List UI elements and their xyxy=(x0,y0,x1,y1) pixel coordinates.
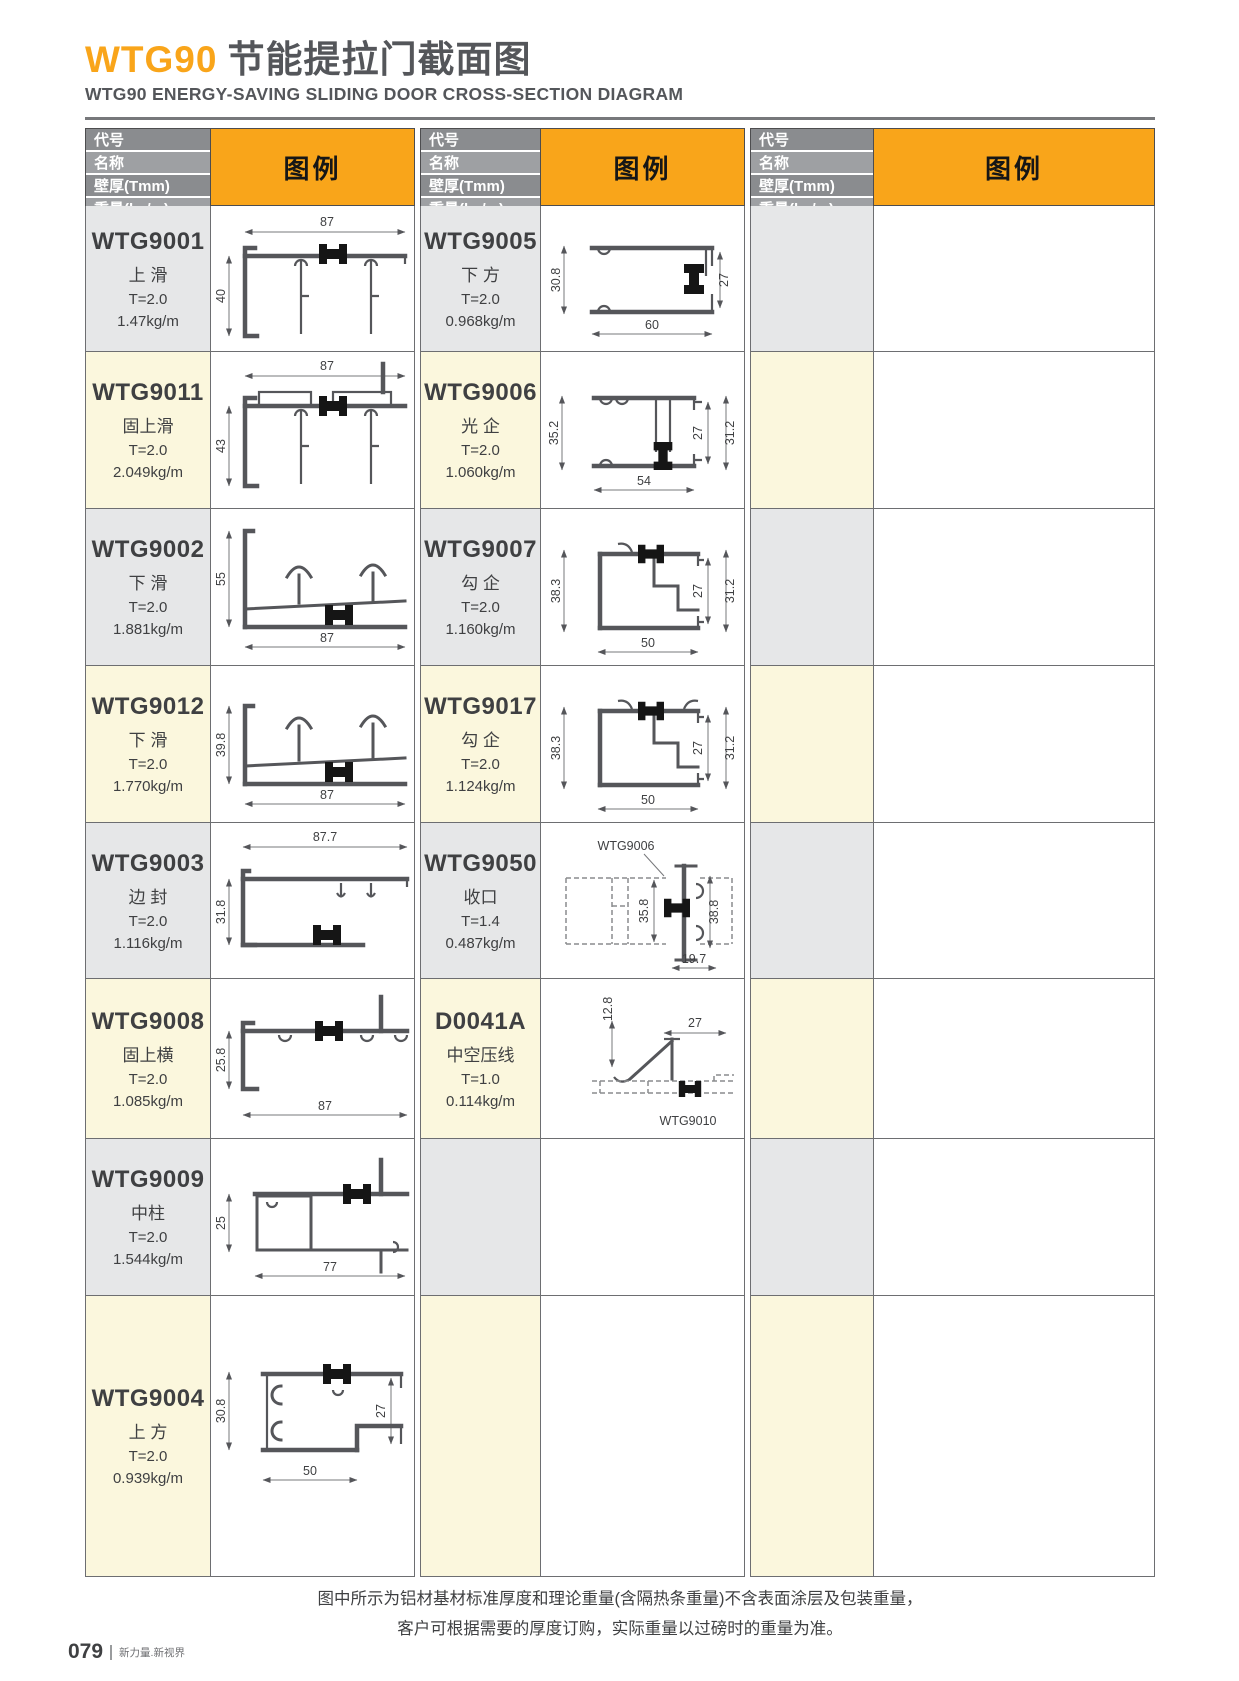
diagram-cell: 87 43 xyxy=(211,352,414,508)
product-code: WTG9012 xyxy=(92,693,205,721)
product-code: WTG9007 xyxy=(424,536,537,564)
table-row: WTG9012 下 滑 T=2.0 1.770kg/m 39.8 87 xyxy=(85,666,415,823)
table-group-1: 代号 名称 壁厚(Tmm) 重量(kg/m) 图例 WTG9001 上 滑 T=… xyxy=(85,128,415,1577)
dim-label: 50 xyxy=(641,636,655,650)
profile-diagram-wtg9012: 39.8 87 xyxy=(215,672,411,816)
diagram-cell: 38.3 27 31.2 50 xyxy=(541,666,744,822)
product-name: 中柱 xyxy=(131,1199,165,1224)
diagram-cell-empty xyxy=(541,1139,744,1295)
diagram-cell-empty xyxy=(541,1296,744,1576)
table-row xyxy=(420,1296,745,1577)
dim-label: 55 xyxy=(215,572,228,586)
product-info: WTG9007 勾 企 T=2.0 1.160kg/m xyxy=(421,509,541,665)
product-weight: 0.968kg/m xyxy=(445,313,515,330)
dim-label: 31.2 xyxy=(723,736,737,760)
product-code: WTG9006 xyxy=(424,379,537,407)
product-info-empty xyxy=(751,1296,874,1576)
product-info: WTG9001 上 滑 T=2.0 1.47kg/m xyxy=(86,206,211,351)
product-thickness: T=2.0 xyxy=(461,599,500,616)
diagram-cell-empty xyxy=(874,823,1154,978)
title-series-code: WTG90 xyxy=(85,39,217,80)
dim-label: 87 xyxy=(320,631,334,645)
product-thickness: T=2.0 xyxy=(129,442,168,459)
diagram-cell: 25.8 87 xyxy=(211,979,414,1138)
table-row: WTG9011 固上滑 T=2.0 2.049kg/m 87 43 xyxy=(85,352,415,509)
product-code: WTG9004 xyxy=(92,1385,205,1413)
product-info-empty xyxy=(421,1296,541,1576)
diagram-cell-empty xyxy=(874,509,1154,665)
product-info: WTG9002 下 滑 T=2.0 1.881kg/m xyxy=(86,509,211,665)
profile-diagram-wtg9017: 38.3 27 31.2 50 xyxy=(548,671,738,817)
product-code: WTG9002 xyxy=(92,536,205,564)
product-name: 中空压线 xyxy=(447,1041,515,1066)
profile-diagram-wtg9006: 35.2 27 31.2 54 xyxy=(548,358,738,502)
product-name: 勾 企 xyxy=(461,726,500,751)
product-code: WTG9005 xyxy=(424,228,537,256)
dim-label: 38.8 xyxy=(707,899,721,923)
diagram-cell-empty xyxy=(874,666,1154,822)
dim-label: 27 xyxy=(691,426,705,440)
table-row: WTG9006 光 企 T=2.0 1.060kg/m 35.2 27 31.2… xyxy=(420,352,745,509)
product-thickness: T=2.0 xyxy=(461,756,500,773)
product-code: WTG9001 xyxy=(92,228,205,256)
dim-label: 87 xyxy=(318,1099,332,1113)
profile-diagram-d0041a: 12.8 27 WTG9010 xyxy=(548,979,738,1139)
table-row xyxy=(750,979,1155,1139)
title-block: WTG90节能提拉门截面图 WTG90 ENERGY-SAVING SLIDIN… xyxy=(85,40,1155,105)
table-row xyxy=(750,509,1155,666)
diagram-cell: WTG9006 35.8 38.8 19.7 xyxy=(541,823,744,978)
product-code: WTG9009 xyxy=(92,1166,205,1194)
table-row: WTG9017 勾 企 T=2.0 1.124kg/m 38.3 27 31.2… xyxy=(420,666,745,823)
diagram-cell: 35.2 27 31.2 54 xyxy=(541,352,744,508)
product-name: 固上滑 xyxy=(123,412,174,437)
product-weight: 0.487kg/m xyxy=(445,935,515,952)
reference-label: WTG9006 xyxy=(597,839,654,853)
header-legend: 图例 xyxy=(541,129,744,205)
header-label-thickness: 壁厚(Tmm) xyxy=(751,175,873,196)
dim-label: 38.3 xyxy=(549,579,563,603)
product-code: WTG9050 xyxy=(424,850,537,878)
table-row: WTG9005 下 方 T=2.0 0.968kg/m 30.8 27 60 xyxy=(420,206,745,352)
diagram-cell: 12.8 27 WTG9010 xyxy=(541,979,744,1138)
product-info-empty xyxy=(751,352,874,508)
header-label-thickness: 壁厚(Tmm) xyxy=(421,175,540,196)
table-group-3: 代号 名称 壁厚(Tmm) 重量(kg/m) 图例 xyxy=(750,128,1155,1577)
product-name: 下 滑 xyxy=(129,569,168,594)
page-number: 079 xyxy=(68,1640,103,1664)
diagram-cell: 87 40 xyxy=(211,206,414,351)
product-info: WTG9009 中柱 T=2.0 1.544kg/m xyxy=(86,1139,211,1295)
product-thickness: T=2.0 xyxy=(129,1448,168,1465)
table-row: WTG9050 收口 T=1.4 0.487kg/m WTG9006 35.8 … xyxy=(420,823,745,979)
product-weight: 2.049kg/m xyxy=(113,464,183,481)
product-name: 勾 企 xyxy=(461,569,500,594)
header-labels: 代号 名称 壁厚(Tmm) 重量(kg/m) xyxy=(86,129,211,205)
dim-label: 50 xyxy=(303,1464,317,1478)
product-weight: 1.124kg/m xyxy=(445,778,515,795)
brand-slogan: 新力量.新视界 xyxy=(119,1645,185,1660)
product-info: WTG9005 下 方 T=2.0 0.968kg/m xyxy=(421,206,541,351)
dim-label: 31.2 xyxy=(723,579,737,603)
product-name: 边 封 xyxy=(129,883,168,908)
table-row: WTG9008 固上横 T=2.0 1.085kg/m 25.8 87 xyxy=(85,979,415,1139)
table-row: WTG9002 下 滑 T=2.0 1.881kg/m 55 87 xyxy=(85,509,415,666)
page-subtitle: WTG90 ENERGY-SAVING SLIDING DOOR CROSS-S… xyxy=(85,84,1155,105)
product-info-empty xyxy=(751,979,874,1138)
diagram-cell-empty xyxy=(874,1296,1154,1576)
product-weight: 1.770kg/m xyxy=(113,778,183,795)
diagram-cell: 30.8 27 60 xyxy=(541,206,744,351)
profile-diagram-wtg9007: 38.3 27 31.2 50 xyxy=(548,514,738,660)
product-code: WTG9011 xyxy=(92,379,204,407)
page-title: WTG90节能提拉门截面图 xyxy=(85,40,1155,81)
dim-label: 40 xyxy=(215,289,228,303)
product-name: 上 滑 xyxy=(129,261,168,286)
product-code: WTG9017 xyxy=(424,693,537,721)
table-row xyxy=(750,206,1155,352)
product-thickness: T=2.0 xyxy=(129,1071,168,1088)
diagram-cell: 39.8 87 xyxy=(211,666,414,822)
dim-label: 50 xyxy=(641,793,655,807)
product-weight: 1.544kg/m xyxy=(113,1251,183,1268)
dim-label: 19.7 xyxy=(681,952,705,966)
header-label-code: 代号 xyxy=(751,129,873,150)
profile-diagram-wtg9005: 30.8 27 60 xyxy=(548,212,738,346)
table-header: 代号 名称 壁厚(Tmm) 重量(kg/m) 图例 xyxy=(85,128,415,206)
product-weight: 0.114kg/m xyxy=(446,1093,515,1110)
header-label-name: 名称 xyxy=(421,152,540,173)
footer-note-line2: 客户可根据需要的厚度订购，实际重量以过磅时的重量为准。 xyxy=(85,1615,1155,1645)
dim-label: 35.2 xyxy=(548,421,561,445)
diagram-cell-empty xyxy=(874,1139,1154,1295)
product-name: 固上横 xyxy=(123,1041,174,1066)
header-legend: 图例 xyxy=(211,129,414,205)
dim-label: 87 xyxy=(320,215,334,229)
table-group-2: 代号 名称 壁厚(Tmm) 重量(kg/m) 图例 WTG9005 下 方 T=… xyxy=(420,128,745,1577)
product-info-empty xyxy=(751,206,874,351)
product-info: D0041A 中空压线 T=1.0 0.114kg/m xyxy=(421,979,541,1138)
table-row xyxy=(750,666,1155,823)
header-label-code: 代号 xyxy=(421,129,540,150)
table-row xyxy=(420,1139,745,1296)
page-footer: 079 新力量.新视界 xyxy=(68,1640,185,1664)
product-weight: 1.060kg/m xyxy=(445,464,515,481)
product-thickness: T=2.0 xyxy=(129,756,168,773)
table-row: WTG9009 中柱 T=2.0 1.544kg/m 25 77 xyxy=(85,1139,415,1296)
dim-label: 30.8 xyxy=(215,1399,228,1423)
footer-note: 图中所示为铝材基材标准厚度和理论重量(含隔热条重量)不含表面涂层及包装重量， 客… xyxy=(85,1585,1155,1644)
dim-label: 60 xyxy=(645,318,659,332)
product-info-empty xyxy=(751,509,874,665)
product-info: WTG9006 光 企 T=2.0 1.060kg/m xyxy=(421,352,541,508)
dim-label: 43 xyxy=(215,439,228,453)
product-weight: 1.085kg/m xyxy=(113,1093,183,1110)
dim-label: 87 xyxy=(320,788,334,802)
diagram-cell-empty xyxy=(874,206,1154,351)
product-weight: 0.939kg/m xyxy=(113,1470,183,1487)
diagram-cell: 38.3 27 31.2 50 xyxy=(541,509,744,665)
header-label-code: 代号 xyxy=(86,129,210,150)
product-weight: 1.881kg/m xyxy=(113,621,183,638)
product-name: 上 方 xyxy=(129,1418,168,1443)
header-label-thickness: 壁厚(Tmm) xyxy=(86,175,210,196)
diagram-cell: 25 77 xyxy=(211,1139,414,1295)
product-name: 下 方 xyxy=(461,261,500,286)
title-divider xyxy=(85,117,1155,120)
header-label-name: 名称 xyxy=(751,152,873,173)
product-info: WTG9012 下 滑 T=2.0 1.770kg/m xyxy=(86,666,211,822)
diagram-cell-empty xyxy=(874,979,1154,1138)
product-thickness: T=2.0 xyxy=(461,442,500,459)
reference-label: WTG9010 xyxy=(659,1114,716,1128)
product-weight: 1.116kg/m xyxy=(114,935,183,952)
dim-label: 31.8 xyxy=(215,899,228,923)
product-info: WTG9004 上 方 T=2.0 0.939kg/m xyxy=(86,1296,211,1576)
dim-label: 31.2 xyxy=(723,421,737,445)
product-info-empty xyxy=(751,1139,874,1295)
product-info-empty xyxy=(421,1139,541,1295)
dim-label: 87.7 xyxy=(312,830,336,844)
table-row: WTG9004 上 方 T=2.0 0.939kg/m 30.8 27 50 xyxy=(85,1296,415,1577)
dim-label: 27 xyxy=(691,584,705,598)
product-info: WTG9017 勾 企 T=2.0 1.124kg/m xyxy=(421,666,541,822)
profile-diagram-wtg9002: 55 87 xyxy=(215,515,411,659)
dim-label: 27 xyxy=(717,273,731,287)
dim-label: 25 xyxy=(215,1216,228,1230)
dim-label: 30.8 xyxy=(549,267,563,291)
header-labels: 代号 名称 壁厚(Tmm) 重量(kg/m) xyxy=(421,129,541,205)
profile-diagram-wtg9004: 30.8 27 50 xyxy=(215,1330,411,1510)
product-thickness: T=1.0 xyxy=(461,1071,500,1088)
product-code: D0041A xyxy=(435,1008,526,1036)
product-thickness: T=2.0 xyxy=(129,291,168,308)
table-row xyxy=(750,352,1155,509)
product-info: WTG9003 边 封 T=2.0 1.116kg/m xyxy=(86,823,211,978)
table-row xyxy=(750,823,1155,979)
product-code: WTG9008 xyxy=(92,1008,205,1036)
product-weight: 1.160kg/m xyxy=(445,621,515,638)
profile-diagram-wtg9001: 87 40 xyxy=(215,212,411,346)
profile-diagram-wtg9008: 25.8 87 xyxy=(215,985,411,1133)
product-name: 收口 xyxy=(464,883,498,908)
product-info-empty xyxy=(751,666,874,822)
profile-diagram-wtg9003: 87.7 31.8 xyxy=(215,829,411,973)
product-thickness: T=1.4 xyxy=(461,913,500,930)
product-thickness: T=2.0 xyxy=(129,913,168,930)
table-row: WTG9003 边 封 T=2.0 1.116kg/m 87.7 31.8 xyxy=(85,823,415,979)
product-info: WTG9011 固上滑 T=2.0 2.049kg/m xyxy=(86,352,211,508)
dim-label: 27 xyxy=(691,741,705,755)
diagram-cell-empty xyxy=(874,352,1154,508)
table-header: 代号 名称 壁厚(Tmm) 重量(kg/m) 图例 xyxy=(750,128,1155,206)
diagram-cell: 55 87 xyxy=(211,509,414,665)
product-code: WTG9003 xyxy=(92,850,205,878)
dim-label: 27 xyxy=(374,1404,388,1418)
dim-label: 77 xyxy=(323,1260,337,1274)
product-info-empty xyxy=(751,823,874,978)
page-number-divider xyxy=(110,1645,112,1660)
header-legend: 图例 xyxy=(874,129,1154,205)
product-name: 下 滑 xyxy=(129,726,168,751)
header-labels: 代号 名称 壁厚(Tmm) 重量(kg/m) xyxy=(751,129,874,205)
table-row: WTG9007 勾 企 T=2.0 1.160kg/m 38.3 27 31.2… xyxy=(420,509,745,666)
product-thickness: T=2.0 xyxy=(461,291,500,308)
table-header: 代号 名称 壁厚(Tmm) 重量(kg/m) 图例 xyxy=(420,128,745,206)
profile-diagram-wtg9050: WTG9006 35.8 38.8 19.7 xyxy=(548,828,738,974)
profile-diagram-wtg9009: 25 77 xyxy=(215,1144,411,1290)
diagram-cell: 87.7 31.8 xyxy=(211,823,414,978)
footer-note-line1: 图中所示为铝材基材标准厚度和理论重量(含隔热条重量)不含表面涂层及包装重量， xyxy=(85,1585,1155,1615)
table-row: WTG9001 上 滑 T=2.0 1.47kg/m 87 40 xyxy=(85,206,415,352)
product-thickness: T=2.0 xyxy=(129,599,168,616)
profile-diagram-wtg9011: 87 43 xyxy=(215,358,411,502)
product-info: WTG9008 固上横 T=2.0 1.085kg/m xyxy=(86,979,211,1138)
dim-label: 54 xyxy=(637,474,651,488)
product-thickness: T=2.0 xyxy=(129,1229,168,1246)
product-info: WTG9050 收口 T=1.4 0.487kg/m xyxy=(421,823,541,978)
dim-label: 27 xyxy=(688,1016,702,1030)
dim-label: 38.3 xyxy=(549,736,563,760)
table-row: D0041A 中空压线 T=1.0 0.114kg/m 12.8 27 WTG9… xyxy=(420,979,745,1139)
dim-label: 35.8 xyxy=(637,898,651,922)
table-row xyxy=(750,1296,1155,1577)
table-row xyxy=(750,1139,1155,1296)
product-weight: 1.47kg/m xyxy=(117,313,179,330)
diagram-cell: 30.8 27 50 xyxy=(211,1296,414,1576)
dim-label: 39.8 xyxy=(215,733,228,757)
dim-label: 87 xyxy=(320,359,334,373)
dim-label: 25.8 xyxy=(215,1047,228,1071)
dim-label: 12.8 xyxy=(601,996,615,1020)
title-chinese: 节能提拉门截面图 xyxy=(227,39,531,80)
header-label-name: 名称 xyxy=(86,152,210,173)
product-name: 光 企 xyxy=(461,412,500,437)
